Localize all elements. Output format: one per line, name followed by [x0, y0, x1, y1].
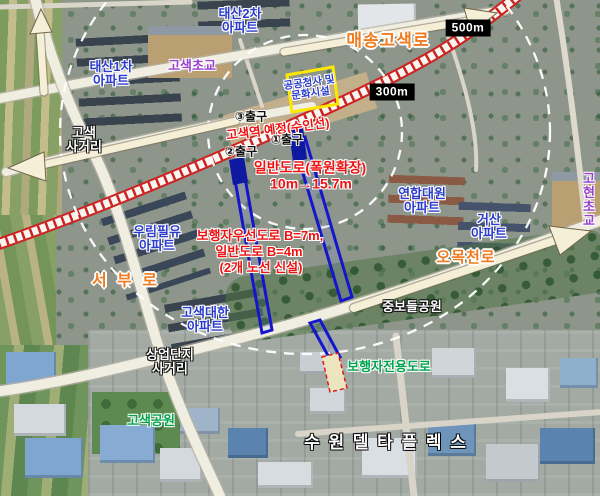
new-road-east-outline [293, 137, 352, 301]
new-road-west-cap [229, 157, 248, 185]
scale-marker-300m: 300m [370, 84, 415, 101]
map-overlay-graphics [0, 0, 600, 496]
arrow-northeast-omokcheon [354, 226, 591, 308]
arrow-west-gosaek [8, 121, 236, 181]
new-road-east-cap [289, 128, 307, 162]
aerial-map-canvas: 태산2차 아파트 태산1차 아파트 고색초교 매송고색로 500m 공공청사 및… [0, 0, 600, 496]
road-network [0, 0, 600, 496]
pedestrian-only-road-strip [322, 353, 347, 392]
new-road-west-outline [232, 161, 272, 333]
scale-marker-500m: 500m [446, 20, 491, 37]
